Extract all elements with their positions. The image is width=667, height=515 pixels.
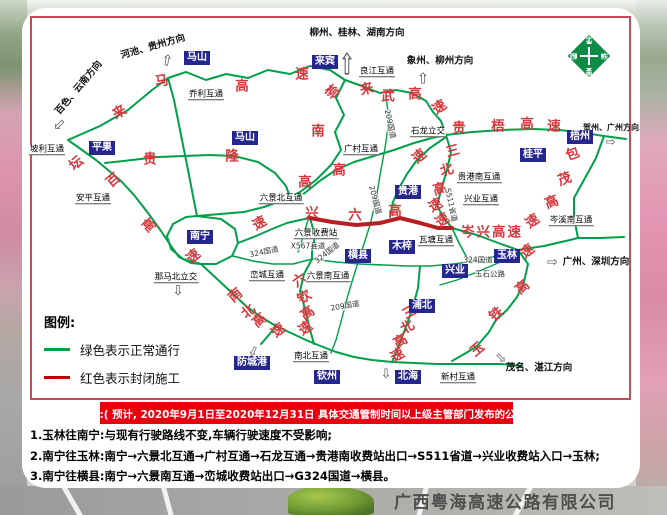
lane-marking — [60, 483, 84, 515]
notice-panel: 第一阶段:( 预计, 2020年9月1日至2020年12月31日 具体交通管制时… — [22, 8, 640, 488]
phase-banner-text: 第一阶段:( 预计, 2020年9月1日至2020年12月31日 具体交通管制时… — [58, 406, 555, 421]
phase-banner: 第一阶段:( 预计, 2020年9月1日至2020年12月31日 具体交通管制时… — [100, 402, 513, 424]
company-name: 广西粤海高速公路有限公司 — [394, 488, 616, 513]
route-note-1: 1.玉林往南宁:与现有行驶路线不变,车辆行驶速度不受影响; — [30, 427, 332, 443]
legend-item-label: 红色表示封闭施工 — [80, 368, 180, 387]
legend-line-swatch — [44, 376, 70, 379]
map-legend: 图例: 绿色表示正常通行红色表示封闭施工 — [44, 312, 180, 387]
roadside-plant — [288, 486, 374, 515]
route-note-3: 3.南宁往横县:南宁→六景南互通→峦城收费站出口→G324国道→横县。 — [30, 468, 395, 484]
legend-line-swatch — [44, 348, 70, 351]
background-photo-flowers-right — [636, 0, 667, 515]
legend-item-label: 绿色表示正常通行 — [80, 340, 180, 359]
route-note-2: 2.南宁往玉林:南宁→六景北互通→广村互通→石龙互通→贵港南收费站出口→S511… — [30, 448, 600, 464]
legend-items: 绿色表示正常通行红色表示封闭施工 — [44, 340, 180, 387]
legend-item: 红色表示封闭施工 — [44, 368, 180, 387]
screenshot-root: 广西粤海高速公路有限公司 第一阶段:( 预计, 2020年9月1日至2020年1… — [0, 0, 667, 515]
legend-item: 绿色表示正常通行 — [44, 340, 180, 359]
legend-title: 图例: — [44, 312, 180, 331]
